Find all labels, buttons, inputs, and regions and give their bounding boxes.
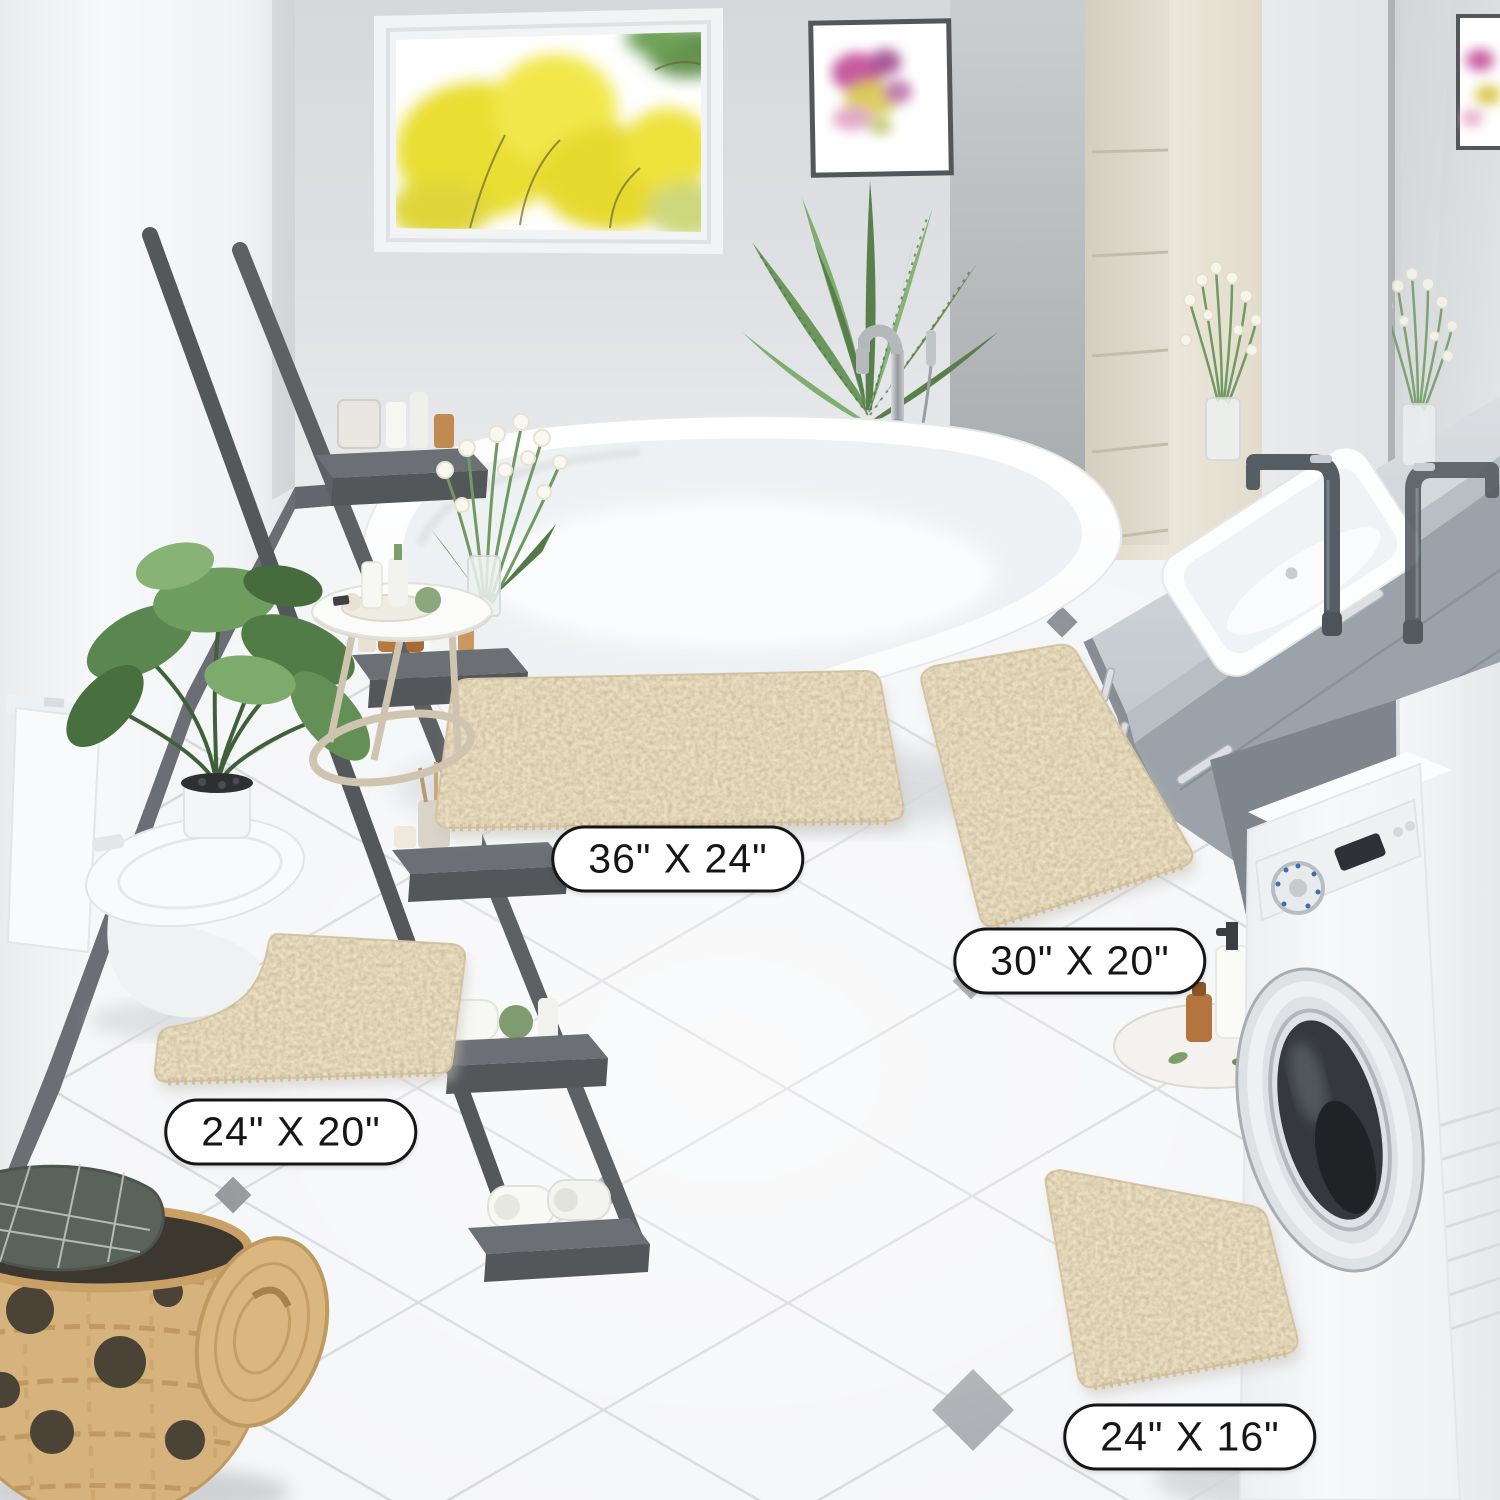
size-label-36x24: 36" X 24" — [551, 826, 804, 893]
shelf-inset-shadow — [1085, 0, 1169, 545]
size-label-30x20: 30" X 20" — [953, 928, 1206, 995]
wall-art — [811, 21, 952, 175]
faucet-spout — [856, 348, 869, 374]
hand-shower — [926, 330, 936, 366]
size-label-24x16: 24" X 16" — [1063, 1404, 1316, 1471]
size-label-24x20: 24" X 20" — [164, 1099, 417, 1166]
bathroom-product-photo: 36" X 24" 30" X 20" 24" X 20" 24" X 16" — [0, 0, 1500, 1500]
bathroom-scene-art — [0, 0, 1500, 1500]
mirror-art-reflection — [1458, 16, 1500, 148]
flush-button — [44, 697, 65, 707]
window — [374, 8, 730, 254]
wall-corner-shade — [272, 0, 295, 500]
rug-36x24 — [420, 660, 920, 840]
